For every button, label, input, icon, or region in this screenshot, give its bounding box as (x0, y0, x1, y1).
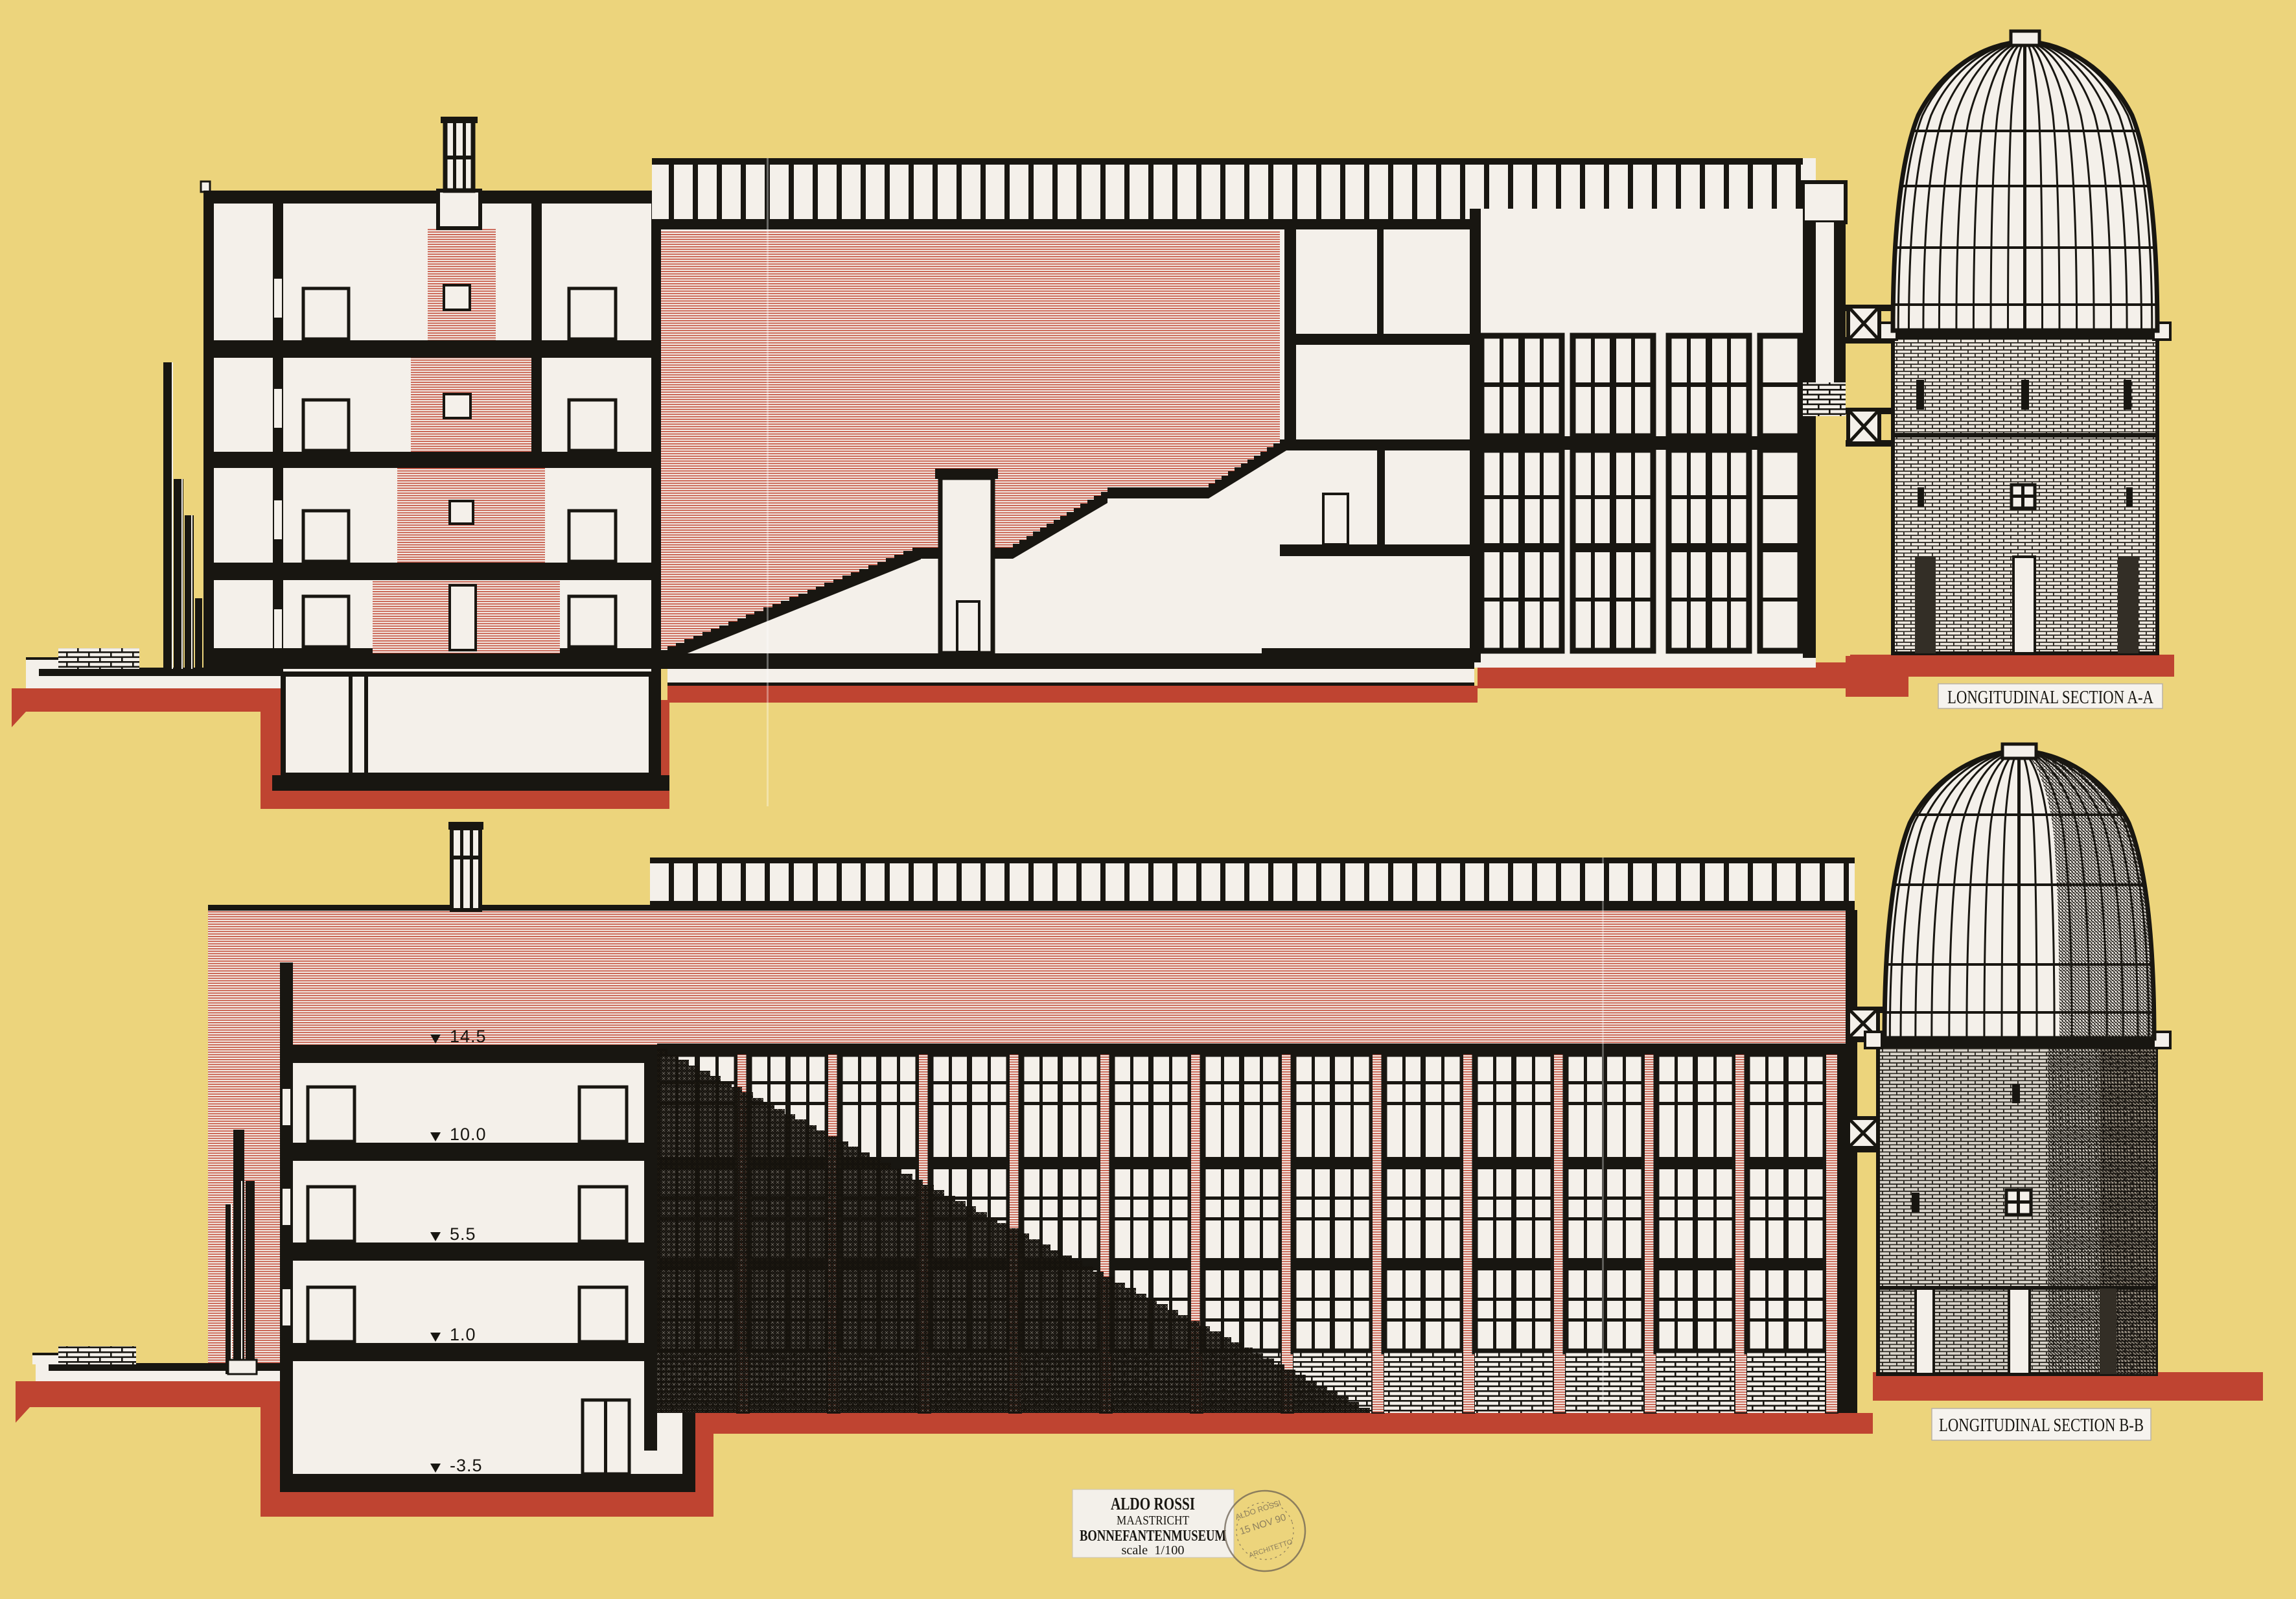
svg-text:14.5: 14.5 (450, 1027, 487, 1046)
svg-text:ALDO ROSSI: ALDO ROSSI (1111, 1494, 1195, 1513)
svg-text:5.5: 5.5 (450, 1224, 476, 1244)
svg-text:MAASTRICHT: MAASTRICHT (1117, 1513, 1189, 1528)
svg-text:LONGITUDINAL SECTION A-A: LONGITUDINAL SECTION A-A (1947, 687, 2153, 708)
svg-text:LONGITUDINAL SECTION B-B: LONGITUDINAL SECTION B-B (1939, 1415, 2144, 1436)
svg-text:10.0: 10.0 (450, 1125, 487, 1144)
svg-text:scale 1/100: scale 1/100 (1122, 1543, 1185, 1558)
svg-text:BONNEFANTENMUSEUM: BONNEFANTENMUSEUM (1080, 1528, 1226, 1545)
svg-text:1.0: 1.0 (450, 1325, 476, 1344)
svg-text:-3.5: -3.5 (450, 1456, 483, 1475)
